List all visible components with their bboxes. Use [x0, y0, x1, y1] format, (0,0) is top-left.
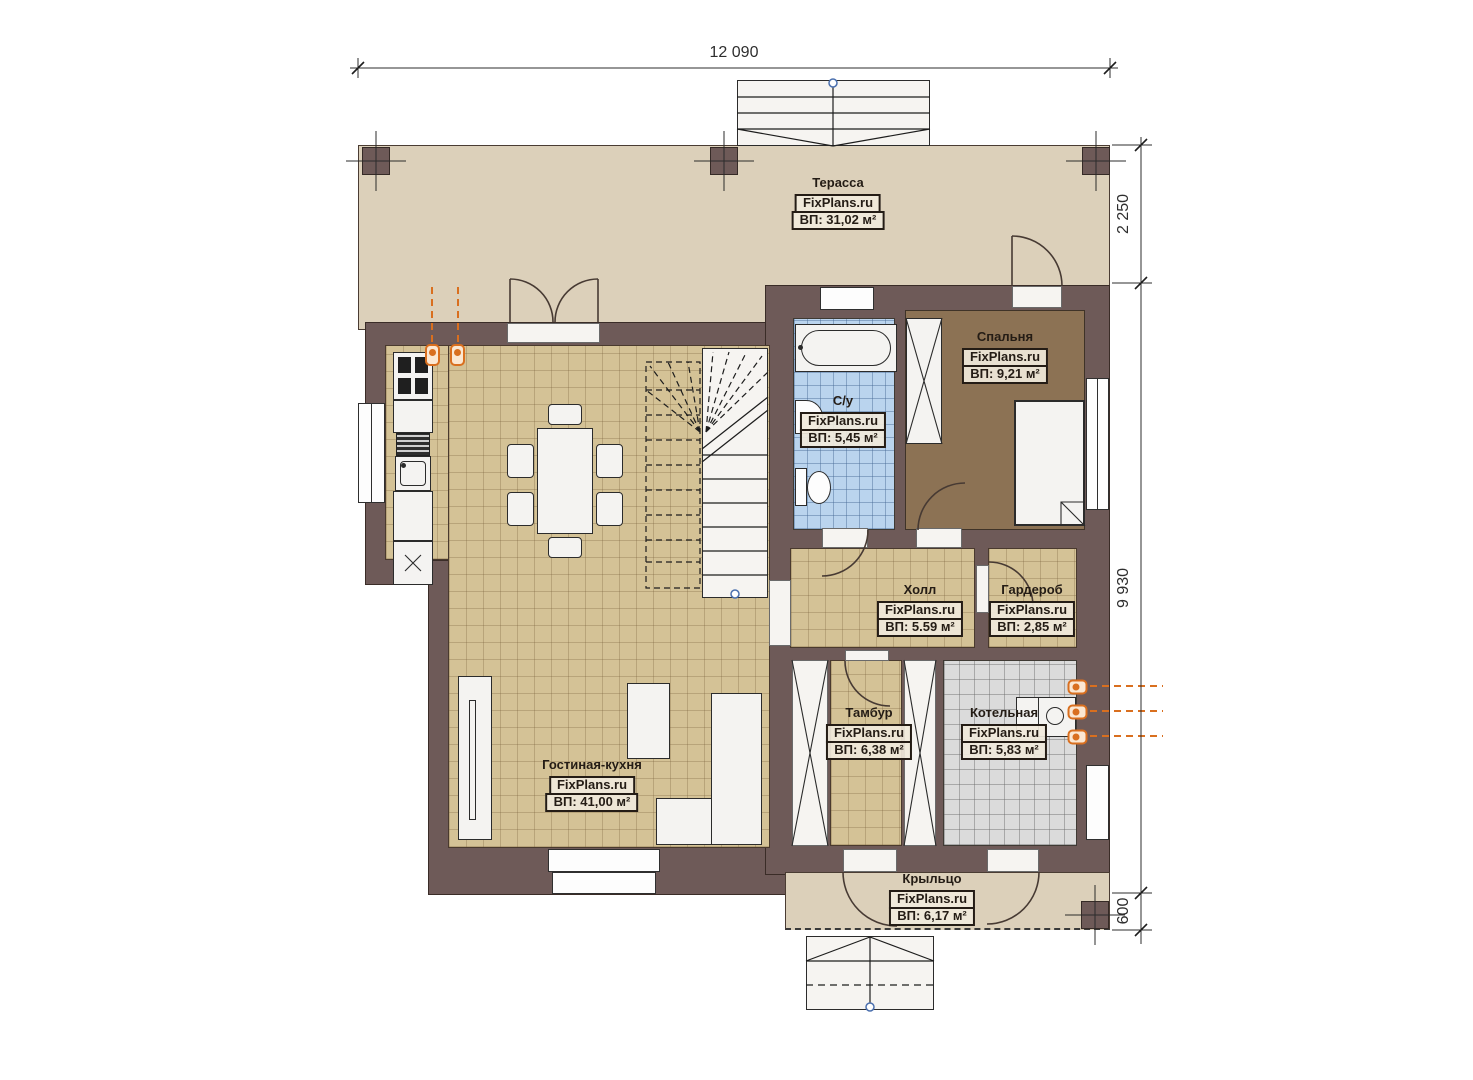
dimension-terrace-depth: 2 250	[1115, 194, 1133, 234]
room-name: Тамбур	[826, 706, 912, 721]
kitchen-appliance	[396, 433, 430, 456]
window-living-bottom-sill	[552, 872, 656, 894]
room-area: ВП: 9,21 м²	[962, 365, 1048, 384]
room-name: Гостиная-кухня	[542, 758, 642, 773]
terrace-entry-steps	[737, 80, 930, 146]
bathtub-basin	[801, 330, 891, 366]
porch-column	[1081, 901, 1109, 929]
room-name: С/у	[800, 394, 886, 409]
room-area: ВП: 5.59 м²	[877, 618, 963, 637]
room-brand: FixPlans.ru	[826, 724, 912, 743]
tv	[469, 700, 476, 820]
dimension-porch-depth: 600	[1115, 898, 1133, 925]
room-name: Крыльцо	[889, 872, 975, 887]
porch-steps	[806, 936, 934, 1010]
room-brand: FixPlans.ru	[795, 194, 881, 213]
room-label-bathroom: С/у FixPlans.ru ВП: 5,45 м²	[800, 394, 886, 448]
dining-table	[537, 428, 593, 534]
room-brand: FixPlans.ru	[961, 724, 1047, 743]
coffee-table	[627, 683, 670, 759]
kitchen-counter-2	[393, 491, 433, 541]
kitchen-sink-faucet	[401, 463, 406, 468]
room-brand: FixPlans.ru	[800, 412, 886, 431]
window-boiler-right	[1086, 765, 1109, 840]
door-vestibule-porch	[843, 849, 897, 872]
room-area: ВП: 6,17 м²	[889, 907, 975, 926]
room-brand: FixPlans.ru	[989, 601, 1075, 620]
dining-chair	[596, 444, 623, 478]
room-brand: FixPlans.ru	[877, 601, 963, 620]
radiator-icon	[425, 344, 440, 366]
door-boiler-porch	[987, 849, 1039, 872]
door-bedroom-hall	[916, 528, 962, 548]
terrace-column-left	[362, 147, 390, 175]
bedroom-closet	[906, 318, 942, 444]
toilet-tank	[795, 468, 807, 506]
french-door-threshold	[507, 323, 600, 343]
room-brand: FixPlans.ru	[962, 348, 1048, 367]
room-label-hall: Холл FixPlans.ru ВП: 5.59 м²	[877, 583, 963, 637]
room-brand: FixPlans.ru	[549, 776, 635, 795]
boiler-dial	[1046, 707, 1064, 725]
dishwasher	[393, 541, 433, 585]
bathtub-faucet	[798, 345, 803, 350]
kitchen-counter	[393, 400, 433, 433]
bed	[1014, 400, 1085, 526]
room-label-wardrobe: Гардероб FixPlans.ru ВП: 2,85 м²	[989, 583, 1075, 637]
room-name: Котельная	[961, 706, 1047, 721]
room-area: ВП: 5,83 м²	[961, 741, 1047, 760]
room-name: Гардероб	[989, 583, 1075, 598]
floor-plan: 12 090 2 250 9 930 600 Терасса FixPlans.…	[0, 0, 1473, 1080]
dining-chair	[507, 492, 534, 526]
room-name: Терасса	[792, 176, 885, 191]
room-label-terrace: Терасса FixPlans.ru ВП: 31,02 м²	[792, 176, 885, 230]
dimension-width: 12 090	[710, 44, 759, 62]
room-label-living: Гостиная-кухня FixPlans.ru ВП: 41,00 м²	[542, 758, 642, 812]
room-label-vestibule: Тамбур FixPlans.ru ВП: 6,38 м²	[826, 706, 912, 760]
door-hall-vestibule	[845, 650, 889, 661]
room-label-porch: Крыльцо FixPlans.ru ВП: 6,17 м²	[889, 872, 975, 926]
window-left-wall-frame	[371, 404, 372, 502]
vestibule-closet-left	[792, 660, 828, 846]
toilet-bowl	[807, 471, 831, 504]
sofa-chaise	[656, 798, 712, 845]
dimension-house-depth: 9 930	[1115, 568, 1133, 608]
window-living-bottom	[548, 849, 660, 872]
room-label-boiler: Котельная FixPlans.ru ВП: 5,83 м²	[961, 706, 1047, 760]
stove-burner	[398, 357, 411, 373]
room-area: ВП: 41,00 м²	[546, 793, 639, 812]
stove-burner	[415, 378, 428, 394]
room-name: Холл	[877, 583, 963, 598]
terrace-column-mid	[710, 147, 738, 175]
sofa-long	[711, 693, 762, 845]
radiator-icon	[1068, 730, 1088, 745]
stairs-flight	[702, 348, 768, 598]
room-name: Спальня	[962, 330, 1048, 345]
room-label-bedroom: Спальня FixPlans.ru ВП: 9,21 м²	[962, 330, 1048, 384]
room-brand: FixPlans.ru	[889, 890, 975, 909]
radiator-icon	[1068, 680, 1088, 695]
terrace-bedroom-door-threshold	[1012, 286, 1062, 308]
dining-chair	[596, 492, 623, 526]
room-area: ВП: 6,38 м²	[826, 741, 912, 760]
room-area: ВП: 2,85 м²	[989, 618, 1075, 637]
dining-chair	[548, 404, 582, 425]
room-area: ВП: 31,02 м²	[792, 211, 885, 230]
stove-burner	[398, 378, 411, 394]
radiator-icon	[1068, 705, 1088, 720]
room-area: ВП: 5,45 м²	[800, 429, 886, 448]
door-hall-wardrobe	[976, 565, 989, 613]
radiator-icon	[450, 344, 465, 366]
dining-chair	[548, 537, 582, 558]
door-bathroom-hall	[822, 528, 868, 548]
dining-chair	[507, 444, 534, 478]
window-bathroom-top	[820, 287, 874, 310]
terrace-column-right	[1082, 147, 1110, 175]
opening-living-hall	[769, 580, 791, 646]
window-bedroom-right-frame	[1097, 379, 1098, 509]
